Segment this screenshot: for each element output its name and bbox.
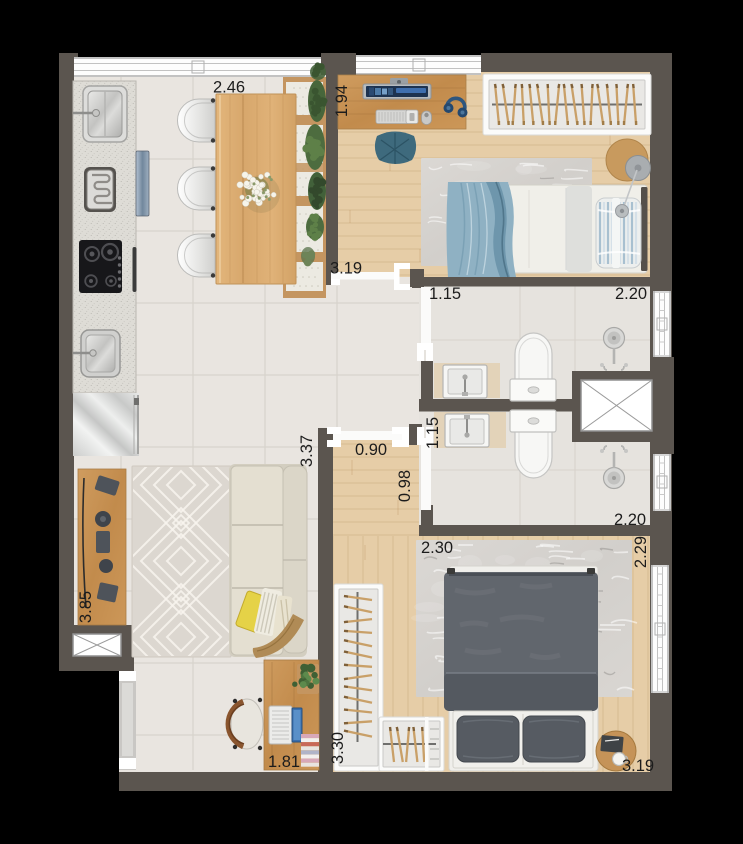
- svg-text:1.15: 1.15: [429, 285, 461, 303]
- svg-text:1.15: 1.15: [424, 417, 442, 449]
- svg-text:2.20: 2.20: [615, 285, 647, 303]
- svg-text:3.30: 3.30: [329, 732, 347, 764]
- svg-text:0.90: 0.90: [355, 441, 387, 459]
- svg-text:3.19: 3.19: [330, 260, 362, 278]
- svg-text:3.19: 3.19: [622, 757, 654, 775]
- svg-text:1.94: 1.94: [333, 85, 351, 117]
- svg-text:2.30: 2.30: [421, 539, 453, 557]
- svg-text:2.46: 2.46: [213, 79, 245, 97]
- svg-text:1.81: 1.81: [268, 753, 300, 771]
- svg-text:3.85: 3.85: [77, 591, 95, 623]
- svg-text:2.29: 2.29: [632, 536, 650, 568]
- svg-text:0.98: 0.98: [396, 470, 414, 502]
- svg-text:3.37: 3.37: [298, 435, 316, 467]
- svg-text:2.20: 2.20: [614, 511, 646, 529]
